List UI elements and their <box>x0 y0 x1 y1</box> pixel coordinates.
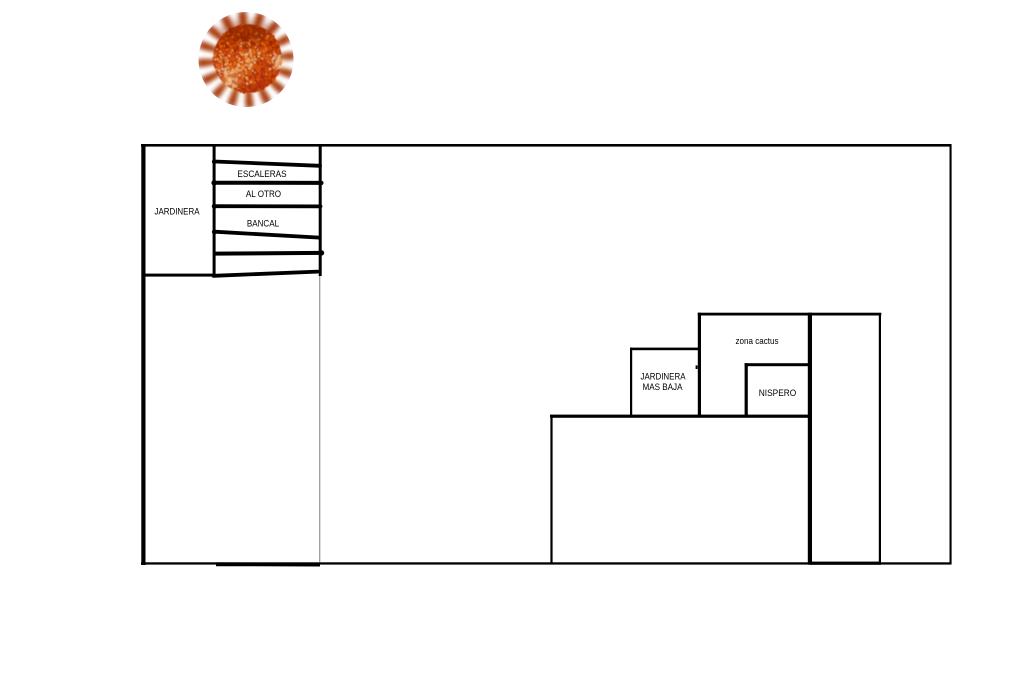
svg-text:ESCALERAS: ESCALERAS <box>237 169 286 179</box>
svg-text:BANCAL: BANCAL <box>247 219 279 229</box>
svg-text:zona cactus: zona cactus <box>736 336 779 346</box>
svg-text:MAS BAJA: MAS BAJA <box>643 382 684 392</box>
svg-text:AL OTRO: AL OTRO <box>246 189 281 199</box>
svg-text:JARDINERA: JARDINERA <box>641 372 687 382</box>
svg-text:NISPERO: NISPERO <box>759 388 797 398</box>
svg-text:JARDINERA: JARDINERA <box>155 207 201 217</box>
